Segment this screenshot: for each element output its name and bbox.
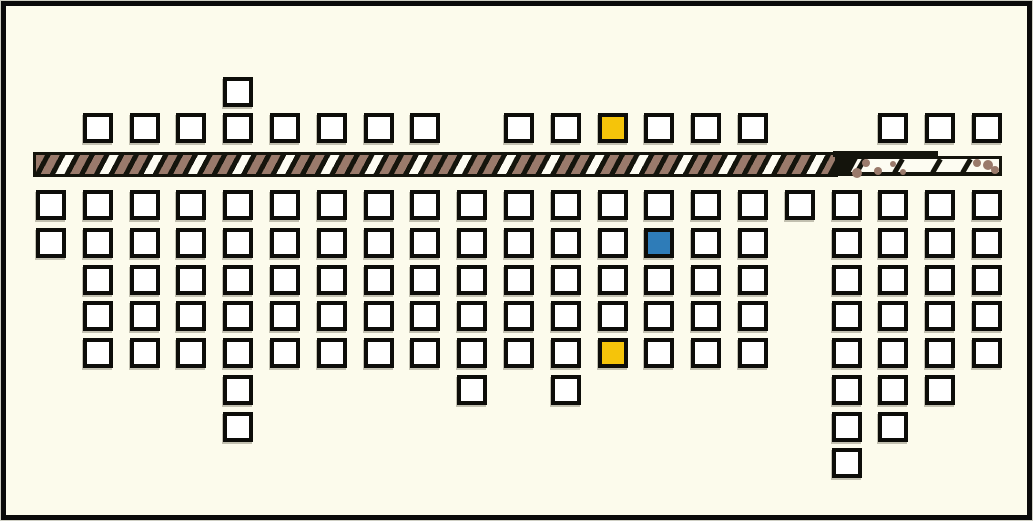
road-plain-segment bbox=[838, 156, 1002, 176]
grid-square[interactable] bbox=[270, 265, 300, 295]
grid-square[interactable] bbox=[925, 301, 955, 331]
grid-square[interactable] bbox=[691, 301, 721, 331]
grid-square-yellow[interactable] bbox=[598, 113, 628, 143]
grid-square[interactable] bbox=[270, 338, 300, 368]
grid-square[interactable] bbox=[410, 265, 440, 295]
grid-square[interactable] bbox=[551, 113, 581, 143]
grid-square[interactable] bbox=[83, 113, 113, 143]
grid-square[interactable] bbox=[364, 113, 394, 143]
canvas-outer-edge bbox=[0, 0, 1033, 521]
grid-square[interactable] bbox=[457, 228, 487, 258]
grid-square[interactable] bbox=[223, 338, 253, 368]
road-hatched-segment bbox=[33, 152, 838, 177]
grid-square[interactable] bbox=[832, 412, 862, 442]
grid-square[interactable] bbox=[457, 190, 487, 220]
grid-square[interactable] bbox=[878, 113, 908, 143]
grid-square[interactable] bbox=[878, 228, 908, 258]
grid-square[interactable] bbox=[83, 228, 113, 258]
grid-square[interactable] bbox=[972, 301, 1002, 331]
grid-square[interactable] bbox=[972, 338, 1002, 368]
grid-square[interactable] bbox=[130, 301, 160, 331]
grid-square[interactable] bbox=[691, 338, 721, 368]
grid-square[interactable] bbox=[83, 190, 113, 220]
grid-square[interactable] bbox=[785, 190, 815, 220]
grid-square[interactable] bbox=[691, 113, 721, 143]
grid-square[interactable] bbox=[598, 190, 628, 220]
canvas-frame-border bbox=[1, 1, 1032, 520]
grid-square[interactable] bbox=[317, 265, 347, 295]
grid-square[interactable] bbox=[644, 190, 674, 220]
grid-square[interactable] bbox=[317, 228, 347, 258]
grid-square[interactable] bbox=[317, 301, 347, 331]
road-dot-mark bbox=[973, 159, 981, 167]
grid-square[interactable] bbox=[691, 265, 721, 295]
grid-square[interactable] bbox=[972, 265, 1002, 295]
grid-square[interactable] bbox=[457, 301, 487, 331]
grid-square[interactable] bbox=[644, 113, 674, 143]
grid-square[interactable] bbox=[504, 190, 534, 220]
grid-square[interactable] bbox=[223, 77, 253, 107]
grid-square[interactable] bbox=[223, 412, 253, 442]
grid-square[interactable] bbox=[364, 228, 394, 258]
grid-square[interactable] bbox=[832, 190, 862, 220]
grid-square[interactable] bbox=[504, 265, 534, 295]
grid-square[interactable] bbox=[504, 338, 534, 368]
grid-square[interactable] bbox=[598, 265, 628, 295]
grid-square[interactable] bbox=[691, 228, 721, 258]
grid-square[interactable] bbox=[925, 228, 955, 258]
grid-square[interactable] bbox=[832, 338, 862, 368]
grid-square[interactable] bbox=[925, 338, 955, 368]
grid-square[interactable] bbox=[130, 228, 160, 258]
grid-square[interactable] bbox=[223, 375, 253, 405]
grid-square[interactable] bbox=[551, 265, 581, 295]
grid-square[interactable] bbox=[223, 190, 253, 220]
grid-square[interactable] bbox=[364, 190, 394, 220]
grid-square[interactable] bbox=[598, 228, 628, 258]
grid-square[interactable] bbox=[832, 375, 862, 405]
grid-square[interactable] bbox=[832, 301, 862, 331]
grid-square[interactable] bbox=[832, 265, 862, 295]
grid-square[interactable] bbox=[551, 190, 581, 220]
grid-square[interactable] bbox=[551, 228, 581, 258]
grid-square[interactable] bbox=[878, 301, 908, 331]
grid-square[interactable] bbox=[36, 228, 66, 258]
grid-square[interactable] bbox=[410, 301, 440, 331]
map-canvas bbox=[0, 0, 1033, 521]
grid-square[interactable] bbox=[223, 228, 253, 258]
grid-square[interactable] bbox=[738, 190, 768, 220]
grid-square[interactable] bbox=[410, 190, 440, 220]
grid-square[interactable] bbox=[598, 301, 628, 331]
grid-square[interactable] bbox=[551, 338, 581, 368]
grid-square[interactable] bbox=[130, 113, 160, 143]
grid-square[interactable] bbox=[223, 301, 253, 331]
grid-square[interactable] bbox=[223, 113, 253, 143]
road-dot-mark bbox=[852, 168, 862, 178]
grid-square[interactable] bbox=[130, 338, 160, 368]
grid-square[interactable] bbox=[551, 301, 581, 331]
grid-square[interactable] bbox=[176, 228, 206, 258]
grid-square[interactable] bbox=[878, 375, 908, 405]
grid-square[interactable] bbox=[644, 301, 674, 331]
road-dot-mark bbox=[991, 166, 999, 174]
grid-square[interactable] bbox=[83, 301, 113, 331]
grid-square[interactable] bbox=[364, 338, 394, 368]
grid-square[interactable] bbox=[504, 113, 534, 143]
grid-square[interactable] bbox=[878, 412, 908, 442]
grid-square[interactable] bbox=[410, 338, 440, 368]
grid-square[interactable] bbox=[270, 228, 300, 258]
grid-square[interactable] bbox=[36, 190, 66, 220]
grid-square[interactable] bbox=[457, 375, 487, 405]
grid-square[interactable] bbox=[130, 190, 160, 220]
road-dash-mark bbox=[960, 158, 972, 174]
grid-square[interactable] bbox=[176, 113, 206, 143]
grid-square[interactable] bbox=[878, 265, 908, 295]
grid-square[interactable] bbox=[551, 375, 581, 405]
grid-square-yellow[interactable] bbox=[598, 338, 628, 368]
grid-square[interactable] bbox=[317, 190, 347, 220]
grid-square[interactable] bbox=[457, 265, 487, 295]
grid-square[interactable] bbox=[878, 338, 908, 368]
grid-square[interactable] bbox=[738, 228, 768, 258]
grid-square[interactable] bbox=[364, 265, 394, 295]
grid-square[interactable] bbox=[644, 338, 674, 368]
grid-square[interactable] bbox=[832, 448, 862, 478]
grid-square[interactable] bbox=[738, 265, 768, 295]
grid-square[interactable] bbox=[317, 113, 347, 143]
grid-square[interactable] bbox=[738, 113, 768, 143]
grid-square[interactable] bbox=[223, 265, 253, 295]
grid-square[interactable] bbox=[410, 113, 440, 143]
grid-square[interactable] bbox=[925, 190, 955, 220]
grid-square[interactable] bbox=[176, 265, 206, 295]
grid-square[interactable] bbox=[270, 113, 300, 143]
grid-square[interactable] bbox=[270, 301, 300, 331]
grid-square[interactable] bbox=[317, 338, 347, 368]
road-dot-mark bbox=[862, 159, 870, 167]
grid-square[interactable] bbox=[83, 338, 113, 368]
grid-square[interactable] bbox=[972, 190, 1002, 220]
grid-square[interactable] bbox=[832, 228, 862, 258]
grid-square[interactable] bbox=[504, 228, 534, 258]
grid-square[interactable] bbox=[176, 190, 206, 220]
grid-square[interactable] bbox=[691, 190, 721, 220]
grid-square[interactable] bbox=[176, 338, 206, 368]
grid-square-blue[interactable] bbox=[644, 228, 674, 258]
grid-square[interactable] bbox=[972, 228, 1002, 258]
grid-square[interactable] bbox=[504, 301, 534, 331]
road-dot-mark bbox=[900, 169, 906, 175]
grid-square[interactable] bbox=[925, 265, 955, 295]
grid-square[interactable] bbox=[130, 265, 160, 295]
grid-square[interactable] bbox=[457, 338, 487, 368]
grid-square[interactable] bbox=[738, 338, 768, 368]
grid-square[interactable] bbox=[972, 113, 1002, 143]
grid-square[interactable] bbox=[738, 301, 768, 331]
grid-square[interactable] bbox=[925, 113, 955, 143]
road-dot-mark bbox=[890, 161, 896, 167]
grid-square[interactable] bbox=[925, 375, 955, 405]
grid-square[interactable] bbox=[878, 190, 908, 220]
grid-square[interactable] bbox=[364, 301, 394, 331]
grid-square[interactable] bbox=[83, 265, 113, 295]
grid-square[interactable] bbox=[410, 228, 440, 258]
grid-square[interactable] bbox=[644, 265, 674, 295]
road-dot-mark bbox=[874, 167, 882, 175]
grid-square[interactable] bbox=[270, 190, 300, 220]
road-dash-mark bbox=[930, 158, 942, 174]
grid-square[interactable] bbox=[176, 301, 206, 331]
